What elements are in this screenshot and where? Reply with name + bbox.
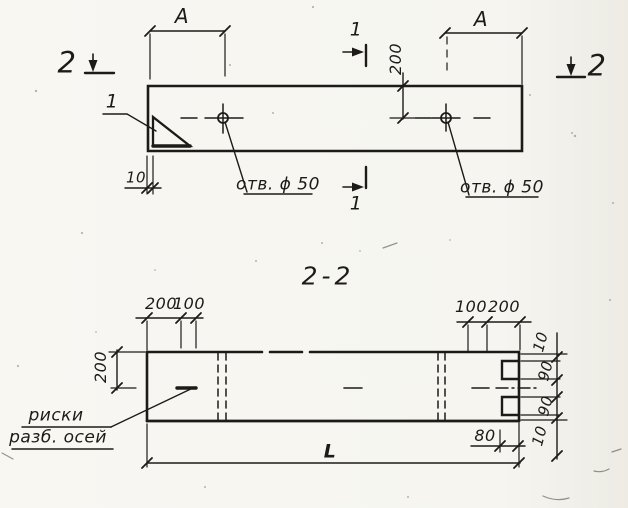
section-dim-length-label: L xyxy=(324,443,337,462)
section-dim-top-right xyxy=(457,317,531,351)
plan-beam-outline xyxy=(148,86,522,151)
section-notch-top xyxy=(502,361,518,379)
plan-section-marker-1-top-label: 1 xyxy=(350,21,363,40)
plan-section-marker-2-left xyxy=(85,54,114,73)
axis-marks-label-line2: разб. осей xyxy=(9,430,107,447)
plan-section-marker-2-right xyxy=(557,57,585,77)
section-break-lines-right xyxy=(438,353,445,420)
plan-dim-a-left-label: A xyxy=(175,6,189,26)
plan-dim-a-left xyxy=(145,26,230,79)
plan-hole-left xyxy=(181,104,243,133)
plan-detail-callout-label: 1 xyxy=(106,93,119,112)
plan-chamfer-triangle xyxy=(153,117,190,146)
section-beam-outline xyxy=(147,352,519,421)
section-break-lines-left xyxy=(218,353,226,420)
blueprint-page: A A 2 2 1 1 1 200 10 отв. ϕ 50 отв. ϕ 50… xyxy=(0,0,628,508)
section-dim-80-label: 80 xyxy=(474,428,495,444)
section-dim-200-top-right-label: 200 xyxy=(488,299,520,315)
plan-section-marker-1-top xyxy=(343,45,366,66)
axis-marks-label-line1: риски xyxy=(28,408,83,425)
section-notch-bottom xyxy=(502,397,518,415)
section-dim-100-top-right-label: 100 xyxy=(455,299,487,315)
plan-dim-10-label: 10 xyxy=(126,171,146,186)
plan-hole-right xyxy=(415,104,490,131)
plan-dim-200 xyxy=(390,73,414,123)
plan-hole-label-right: отв. ϕ 50 xyxy=(460,180,544,197)
plan-section-marker-2-right-label: 2 xyxy=(588,52,607,81)
section-title: 2-2 xyxy=(302,264,355,289)
plan-section-marker-1-bottom xyxy=(343,167,366,192)
plan-hole-label-left: отв. ϕ 50 xyxy=(236,177,320,194)
plan-dim-200-label: 200 xyxy=(388,43,404,75)
section-dim-height-label: 200 xyxy=(93,351,109,383)
section-dim-top-left xyxy=(136,313,203,350)
plan-section-marker-1-bottom-label: 1 xyxy=(350,195,363,214)
plan-dim-a-right-label: A xyxy=(474,9,488,29)
plan-dim-a-right xyxy=(440,28,527,84)
plan-section-marker-2-left-label: 2 xyxy=(58,49,77,78)
section-dim-100-top-left-label: 100 xyxy=(173,296,205,312)
paper-speckles xyxy=(17,6,614,498)
section-dim-height xyxy=(109,347,145,393)
